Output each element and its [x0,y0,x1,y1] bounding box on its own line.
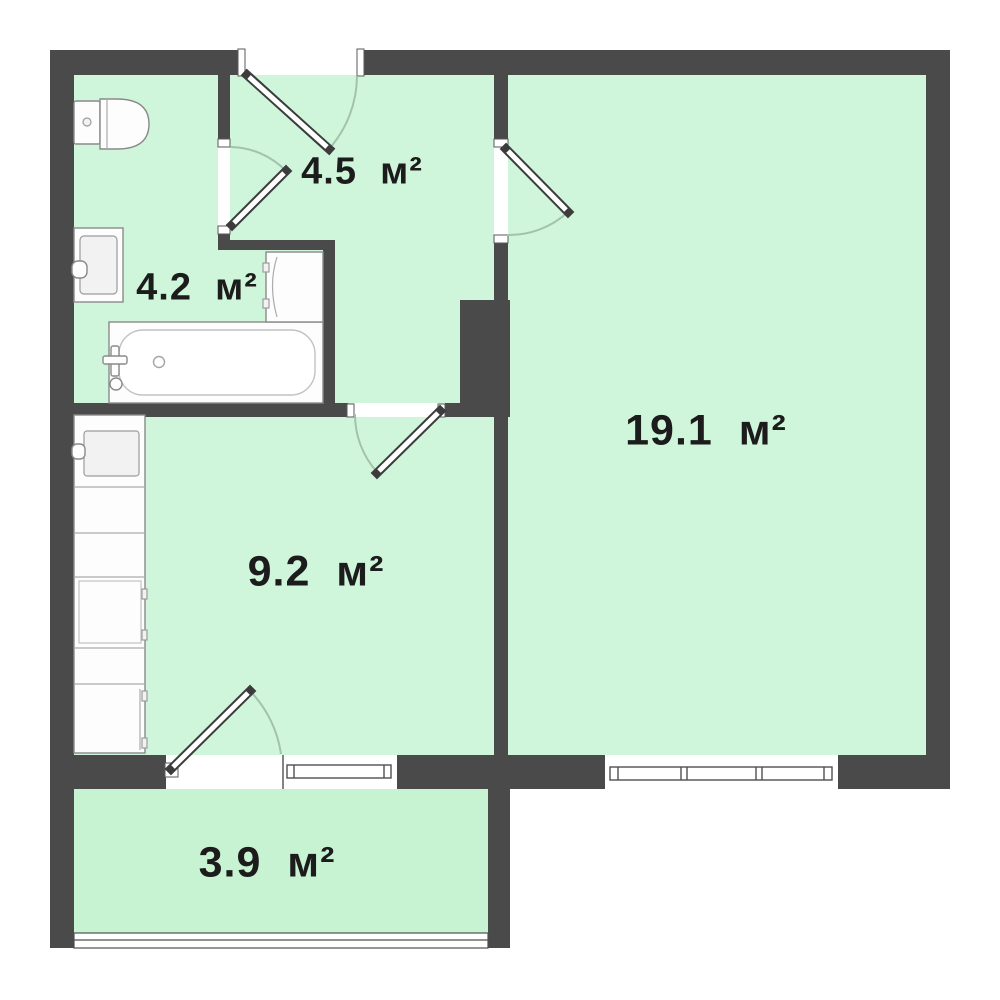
balcony-window-icon [74,933,488,948]
wall-balcony-right [488,789,510,948]
entrance-door-opening [244,50,358,75]
wall-left [50,50,74,948]
room-label-bathroom: 4.2 м² [136,267,258,310]
room-label-living-room: 19.1 м² [625,407,787,456]
living-room-jamb-bottom [494,235,508,243]
room-label-kitchen: 9.2 м² [248,548,385,597]
wall-bathroom-right [323,240,335,407]
entrance-jamb-right [357,49,364,76]
bathtub-icon [103,322,323,403]
bathroom-door-opening [218,146,230,227]
room-label-hallway: 4.5 м² [301,151,423,194]
washing-machine-icon [263,252,323,322]
floor-plan-drawing [0,0,1000,1000]
floor-plan: 4.5 м² 4.2 м² 19.1 м² 9.2 м² 3.9 м² [0,0,1000,1000]
kitchen-counter-icon [72,415,147,753]
wall-bathroom-niche-top [218,240,333,250]
kitchen-jamb-left [347,404,354,417]
living-room-window-icon [610,767,832,780]
room-label-balcony: 3.9 м² [199,839,336,888]
wall-right [926,50,950,789]
kitchen-door-opening [354,403,439,417]
wall-top [50,50,950,75]
toilet-icon [74,99,149,149]
living-room-door-opening [494,146,508,236]
bathroom-sink-icon [72,228,123,302]
bathroom-jamb-top [218,139,230,147]
